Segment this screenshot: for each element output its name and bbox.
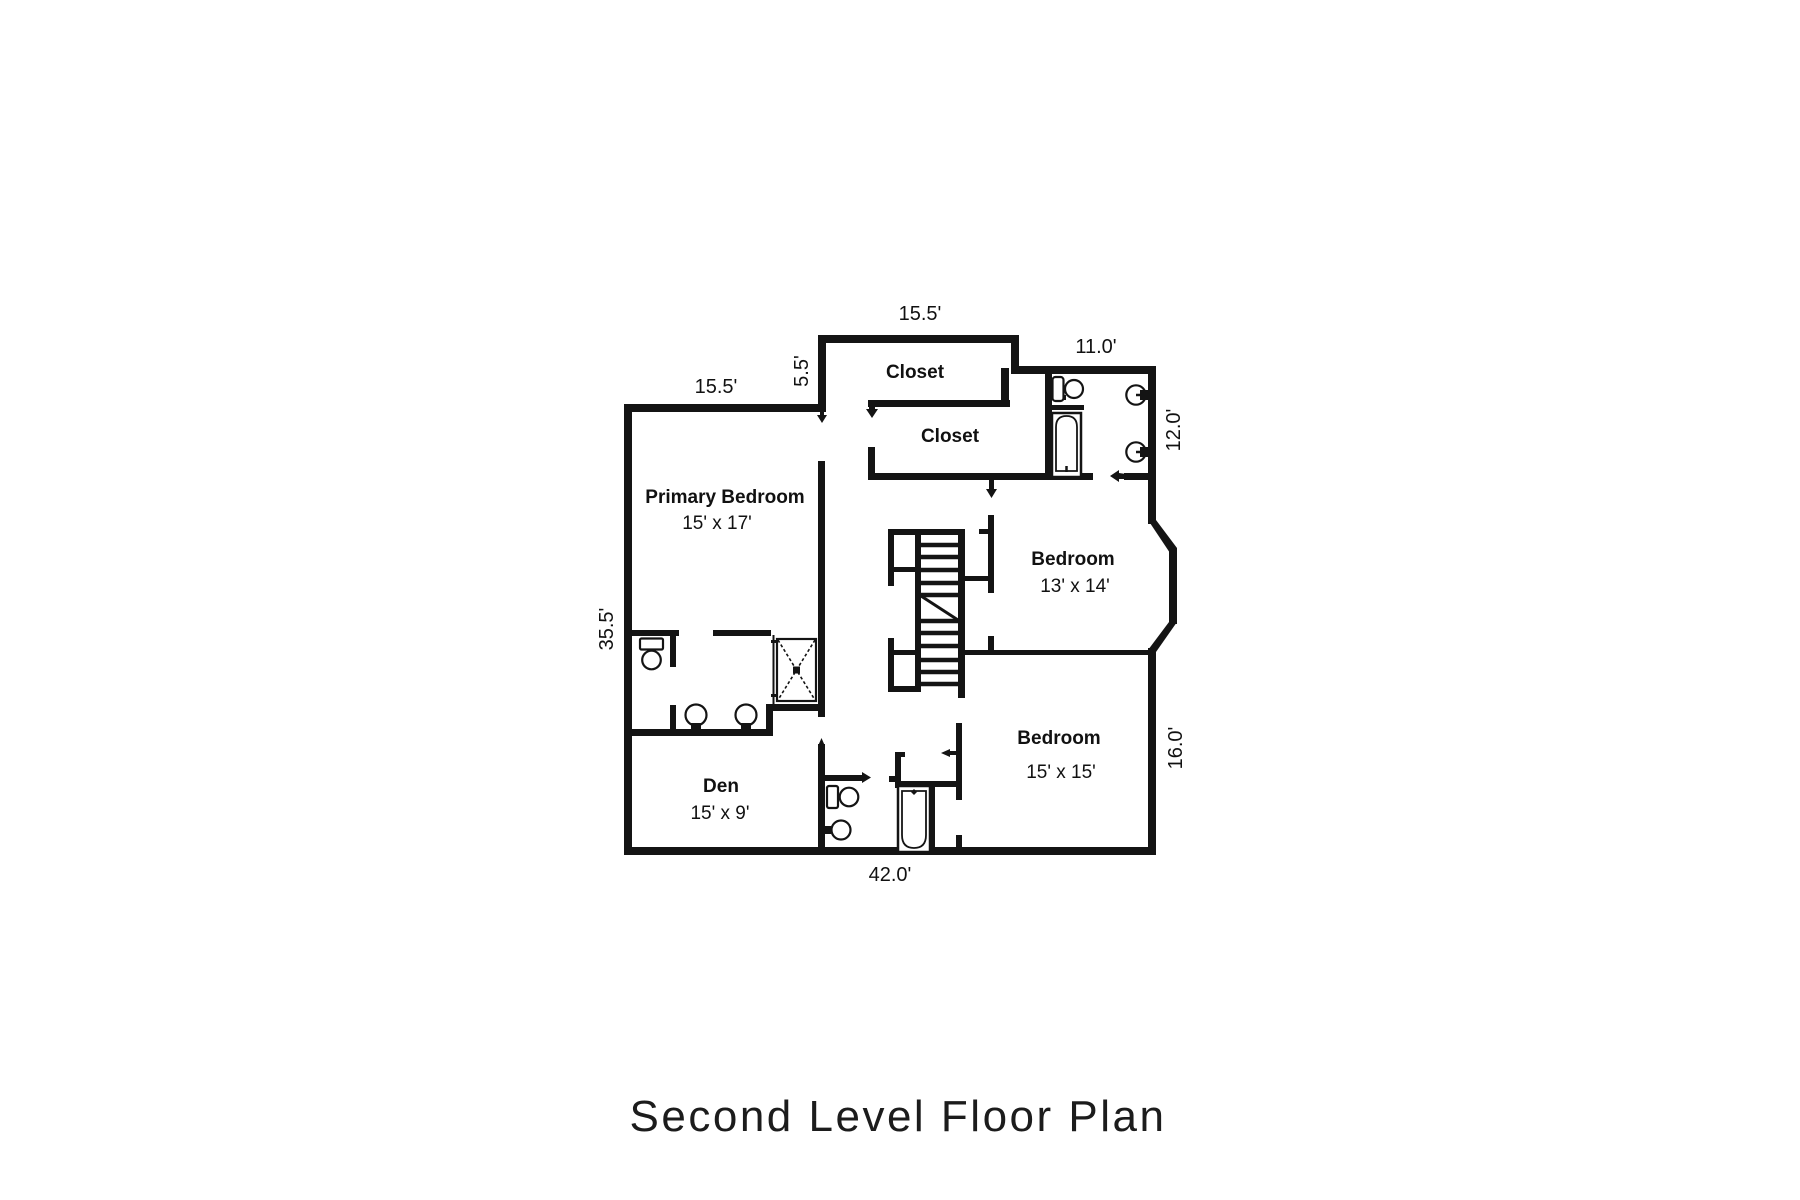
svg-text:Bedroom: Bedroom [1017, 728, 1100, 749]
svg-text:13' x 14': 13' x 14' [1040, 576, 1110, 597]
svg-text:Second Level Floor Plan: Second Level Floor Plan [630, 1092, 1167, 1141]
svg-text:Closet: Closet [921, 426, 980, 447]
svg-text:Primary Bedroom: Primary Bedroom [645, 487, 804, 508]
svg-text:Den: Den [703, 776, 739, 797]
svg-text:16.0': 16.0' [1165, 727, 1187, 770]
svg-text:15' x 9': 15' x 9' [690, 803, 749, 824]
svg-text:12.0': 12.0' [1163, 409, 1185, 452]
svg-text:35.5': 35.5' [596, 608, 618, 651]
svg-text:11.0': 11.0' [1075, 336, 1116, 358]
svg-text:5.5': 5.5' [791, 355, 813, 387]
svg-text:Closet: Closet [886, 362, 945, 383]
svg-text:42.0': 42.0' [869, 864, 912, 886]
svg-text:15.5': 15.5' [695, 376, 738, 398]
svg-text:Bedroom: Bedroom [1031, 549, 1114, 570]
svg-text:15' x 15': 15' x 15' [1026, 762, 1096, 783]
svg-text:15.5': 15.5' [899, 303, 942, 325]
svg-text:15' x 17': 15' x 17' [682, 513, 752, 534]
